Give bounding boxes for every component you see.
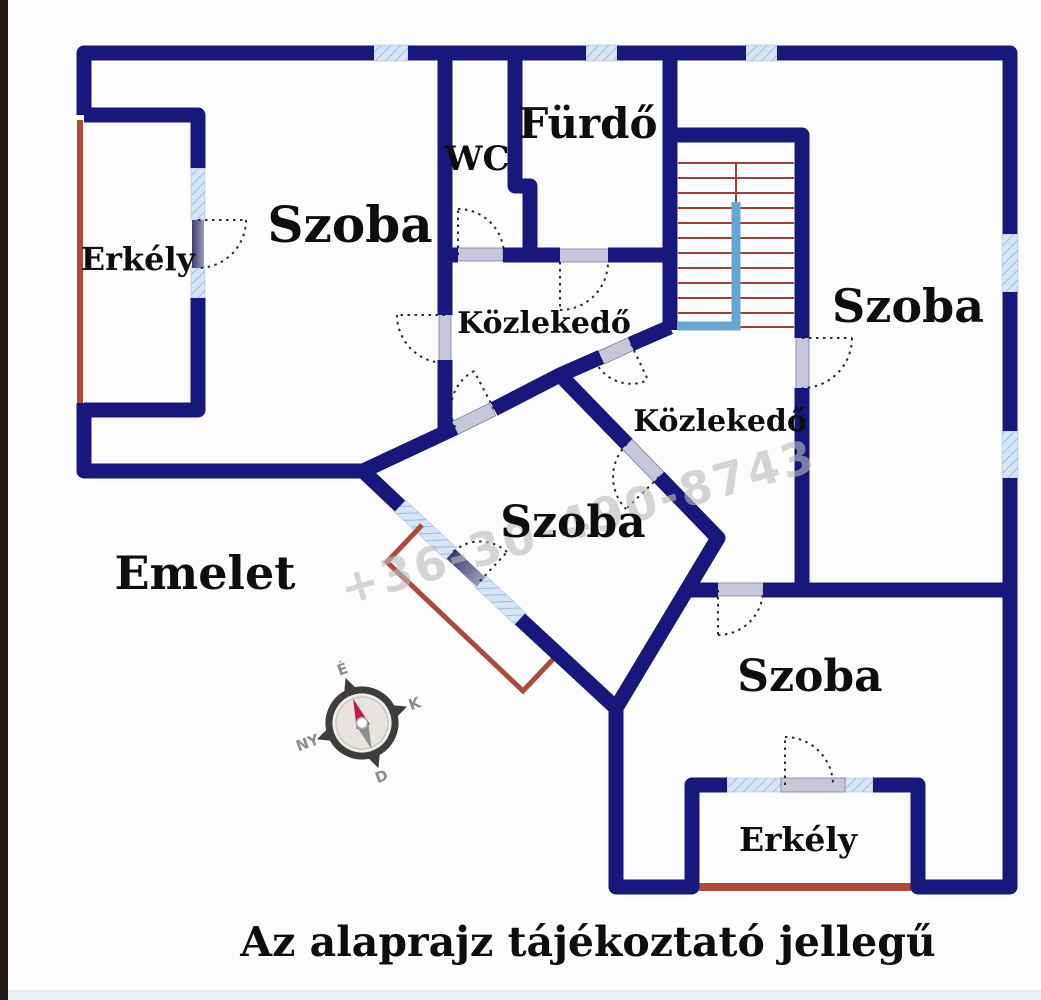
floor-plan: +36-30-490-8743 Szoba Erkély WC Fürdő Sz…	[0, 0, 1041, 1000]
staircase	[678, 163, 794, 327]
room-label-szoba-right: Szoba	[832, 279, 984, 333]
room-label-erkely-left: Erkély	[81, 240, 197, 278]
compass-label-north: É	[334, 658, 350, 679]
screenshot-left-strip	[0, 0, 8, 1000]
walls	[84, 53, 1010, 887]
room-label-kozlekedo-lower: Közlekedő	[633, 404, 807, 439]
room-label-szoba-middle: Szoba	[500, 497, 645, 548]
compass-label-south: D	[373, 766, 391, 787]
room-label-kozlekedo-upper: Közlekedő	[457, 306, 631, 341]
room-label-furdo: Fürdő	[518, 99, 657, 148]
room-label-wc: WC	[443, 139, 509, 179]
screenshot-bottom-band	[8, 990, 1041, 1000]
floor-plan-page: +36-30-490-8743 Szoba Erkély WC Fürdő Sz…	[0, 0, 1041, 1000]
floor-label: Emelet	[115, 546, 297, 600]
caption: Az alaprajz tájékoztató jellegű	[239, 918, 935, 966]
compass: É K D NY	[274, 638, 444, 808]
stair-handrail	[678, 202, 736, 326]
balcony-railings	[80, 120, 911, 887]
room-label-szoba-top-left: Szoba	[267, 195, 432, 254]
compass-label-east: K	[406, 693, 424, 714]
room-label-erkely-bottom: Erkély	[739, 820, 858, 859]
room-label-szoba-bottom: Szoba	[737, 651, 882, 702]
compass-label-west: NY	[293, 730, 322, 755]
